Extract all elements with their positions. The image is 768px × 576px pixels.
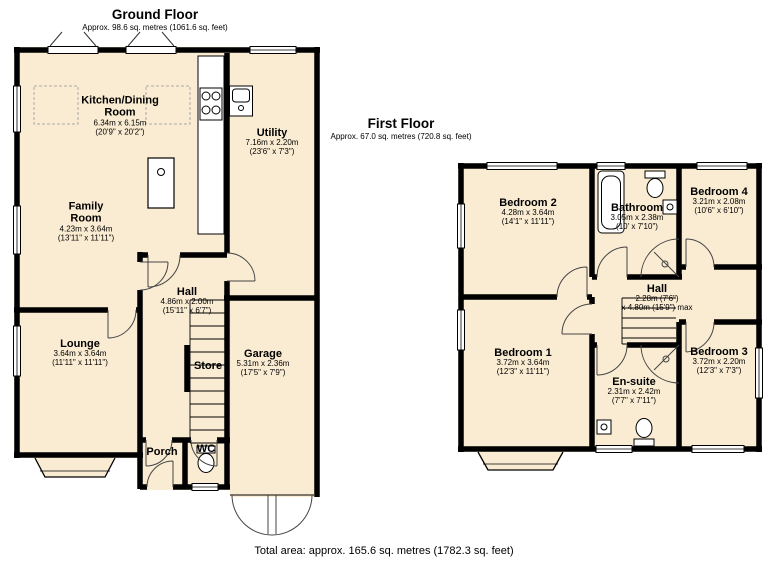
room-label-hall-ground: Hall 4.86m x 2.00m (15'11" x 6'7"): [161, 286, 214, 316]
ground-floor-area: Approx. 98.6 sq. metres (1061.6 sq. feet…: [82, 23, 227, 33]
room-dim-imperial: (7'7" x 7'11"): [608, 397, 661, 406]
room-label-ensuite: En-suite 2.31m x 2.42m (7'7" x 7'11"): [608, 376, 661, 406]
room-dim-imperial: (15'11" x 6'7"): [161, 307, 214, 316]
lounge-side-window: [14, 326, 21, 376]
room-label-porch: Porch: [146, 446, 177, 458]
bedroom2-side-window: [458, 204, 465, 248]
room-name: Family Room: [56, 201, 116, 226]
room-label-wc: WC: [197, 443, 215, 455]
room-label-utility: Utility 7.16m x 2.20m (23'6" x 7'3"): [246, 127, 299, 157]
kitchen-side-window: [14, 86, 21, 132]
room-label-lounge: Lounge 3.64m x 3.64m (11'11" x 11'11"): [52, 338, 108, 368]
room-name: Store: [194, 360, 222, 372]
room-dim-imperial: (10' x 7'10"): [611, 223, 664, 232]
room-label-family-room: Family Room 4.23m x 3.64m (13'11" x 11'1…: [56, 201, 116, 244]
bedroom1-side-window: [458, 310, 465, 350]
room-dim-imperial: (13'11" x 11'11"): [56, 234, 116, 243]
room-label-bedroom4: Bedroom 4 3.21m x 2.08m (10'6" x 6'10"): [690, 186, 747, 216]
room-label-bedroom2: Bedroom 2 4.28m x 3.64m (14'1" x 11'11"): [499, 197, 556, 227]
bedroom3-side-window: [756, 348, 763, 398]
first-floor-area: Approx. 67.0 sq. metres (720.8 sq. feet): [331, 132, 472, 142]
sink-icon: [230, 86, 253, 116]
room-dim-imperial: x 4.80m (15'9") max: [621, 304, 692, 313]
room-dim-imperial: (11'11" x 11'11"): [52, 359, 108, 368]
floorplan-page: Ground Floor Approx. 98.6 sq. metres (10…: [0, 0, 768, 576]
lounge-bay-window: [35, 458, 115, 477]
family-room-window: [14, 206, 21, 254]
room-label-kitchen-dining: Kitchen/Dining Room 6.34m x 6.15m (20'9"…: [70, 95, 170, 138]
room-dim-imperial: (20'9" x 20'2"): [70, 128, 170, 137]
room-name: WC: [197, 443, 215, 455]
kitchen-window-1: [48, 32, 98, 54]
room-dim-imperial: (17'5" x 7'9"): [237, 369, 290, 378]
bathroom-window: [597, 163, 625, 170]
room-label-bedroom3: Bedroom 3 3.72m x 2.20m (12'3" x 7'3"): [690, 346, 747, 376]
sink-icon-bathroom: [663, 200, 677, 214]
room-dim-imperial: (14'1" x 11'11"): [499, 218, 556, 227]
room-dim-imperial: (12'3" x 7'3"): [690, 367, 747, 376]
room-label-bedroom1: Bedroom 1 3.72m x 3.64m (12'3" x 11'11"): [494, 347, 551, 377]
room-name: Porch: [146, 446, 177, 458]
room-dim-imperial: (10'6" x 6'10"): [690, 207, 747, 216]
garage-doors: [232, 495, 312, 535]
toilet-icon-ensuite: [634, 419, 654, 447]
kitchen-counter: [198, 56, 224, 234]
room-label-bathroom: Bathroom 3.05m x 2.38m (10' x 7'10"): [611, 202, 664, 232]
room-label-store: Store: [194, 360, 222, 372]
room-label-hall-first: Hall 2.28m (7'6") x 4.80m (15'9") max: [621, 283, 692, 313]
first-floor-title: First Floor: [331, 117, 472, 132]
ground-floor-title: Ground Floor: [82, 8, 227, 23]
bedroom2-window: [487, 163, 557, 170]
room-name: Kitchen/Dining Room: [70, 95, 170, 120]
hob-icon: [200, 88, 222, 120]
room-dim-imperial: (23'6" x 7'3"): [246, 148, 299, 157]
utility-window: [250, 47, 296, 54]
ensuite-window: [596, 446, 632, 453]
wc-window: [192, 484, 218, 491]
bedroom1-bay-window: [478, 452, 563, 470]
first-floor-title-block: First Floor Approx. 67.0 sq. metres (720…: [331, 117, 472, 142]
sink-icon-ensuite: [597, 420, 611, 434]
ground-floor-title-block: Ground Floor Approx. 98.6 sq. metres (10…: [82, 8, 227, 33]
room-dim-imperial: (12'3" x 11'11"): [494, 368, 551, 377]
toilet-icon-bathroom: [645, 171, 665, 198]
kitchen-window-2: [126, 32, 176, 54]
room-label-garage: Garage 5.31m x 2.36m (17'5" x 7'9"): [237, 348, 290, 378]
bedroom3-bottom-window: [692, 446, 744, 453]
kitchen-island: [148, 158, 174, 208]
bedroom4-window: [697, 163, 747, 170]
total-area-text: Total area: approx. 165.6 sq. metres (17…: [254, 545, 513, 557]
